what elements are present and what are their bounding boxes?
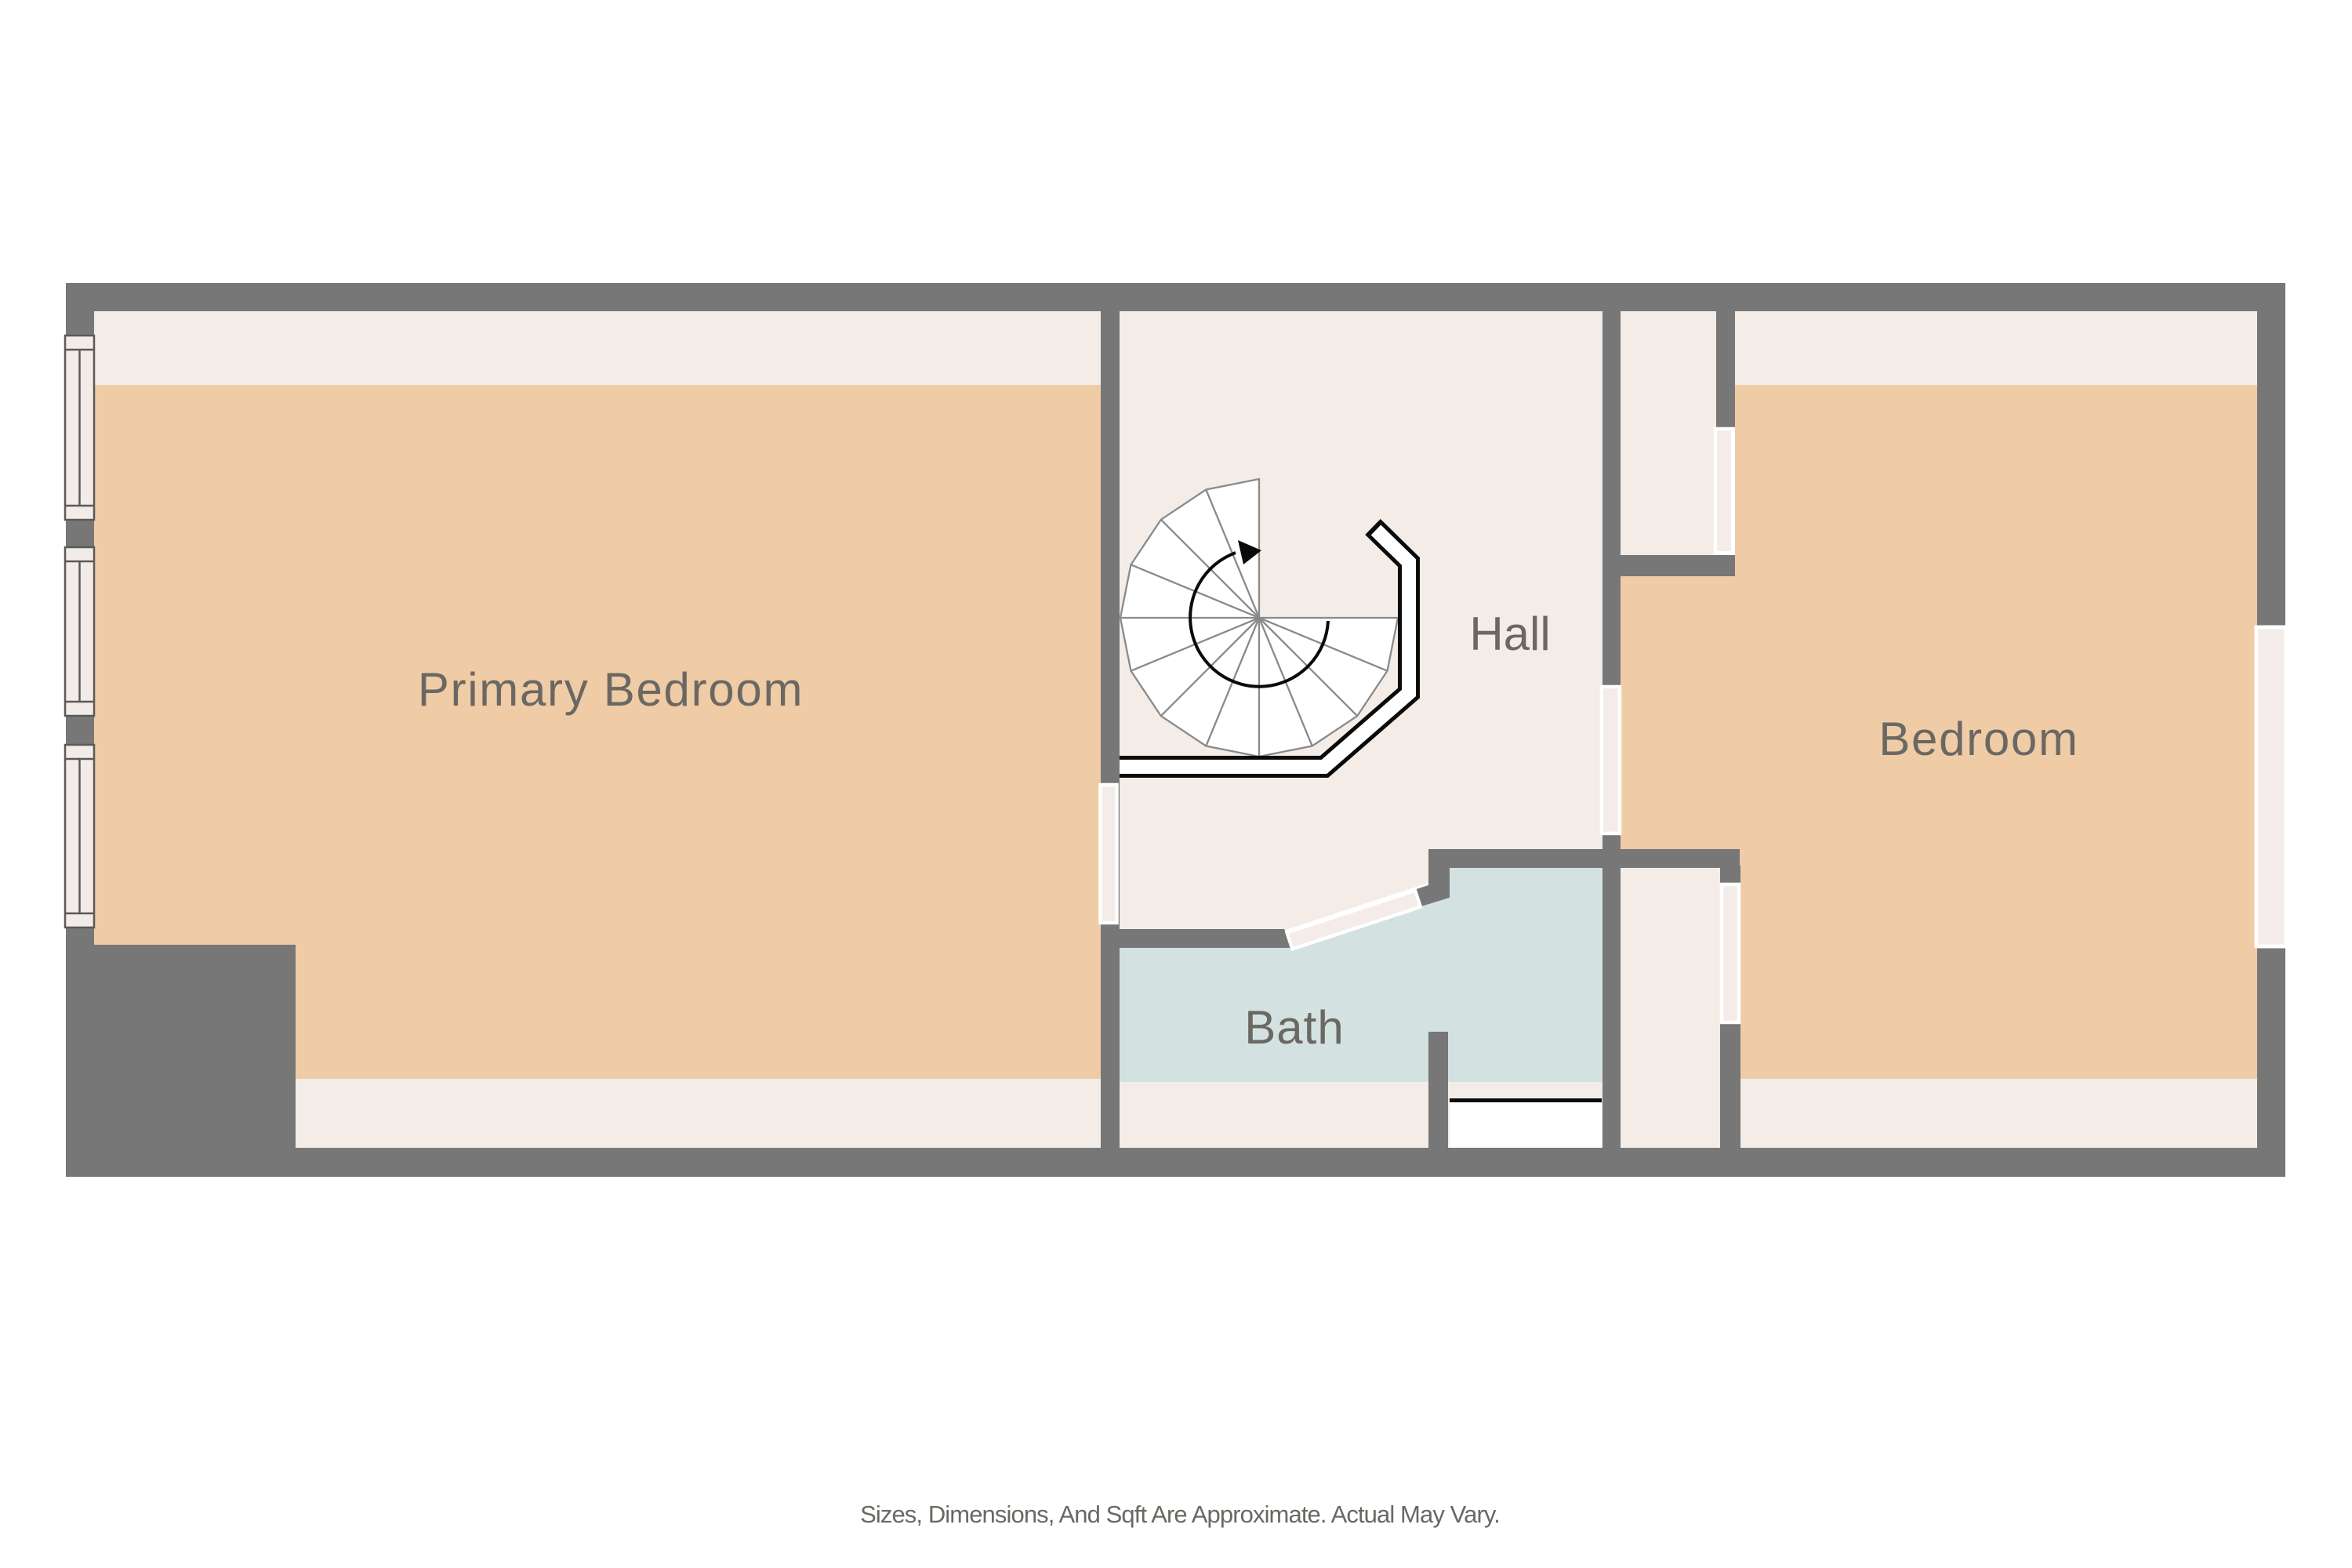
svg-text:Sizes, Dimensions, And Sqft Ar: Sizes, Dimensions, And Sqft Are Approxim… bbox=[860, 1501, 1500, 1528]
svg-text:Primary Bedroom: Primary Bedroom bbox=[418, 663, 804, 716]
svg-text:Hall: Hall bbox=[1469, 608, 1550, 660]
svg-text:Bath: Bath bbox=[1244, 1001, 1344, 1054]
svg-text:Bedroom: Bedroom bbox=[1878, 713, 2078, 765]
